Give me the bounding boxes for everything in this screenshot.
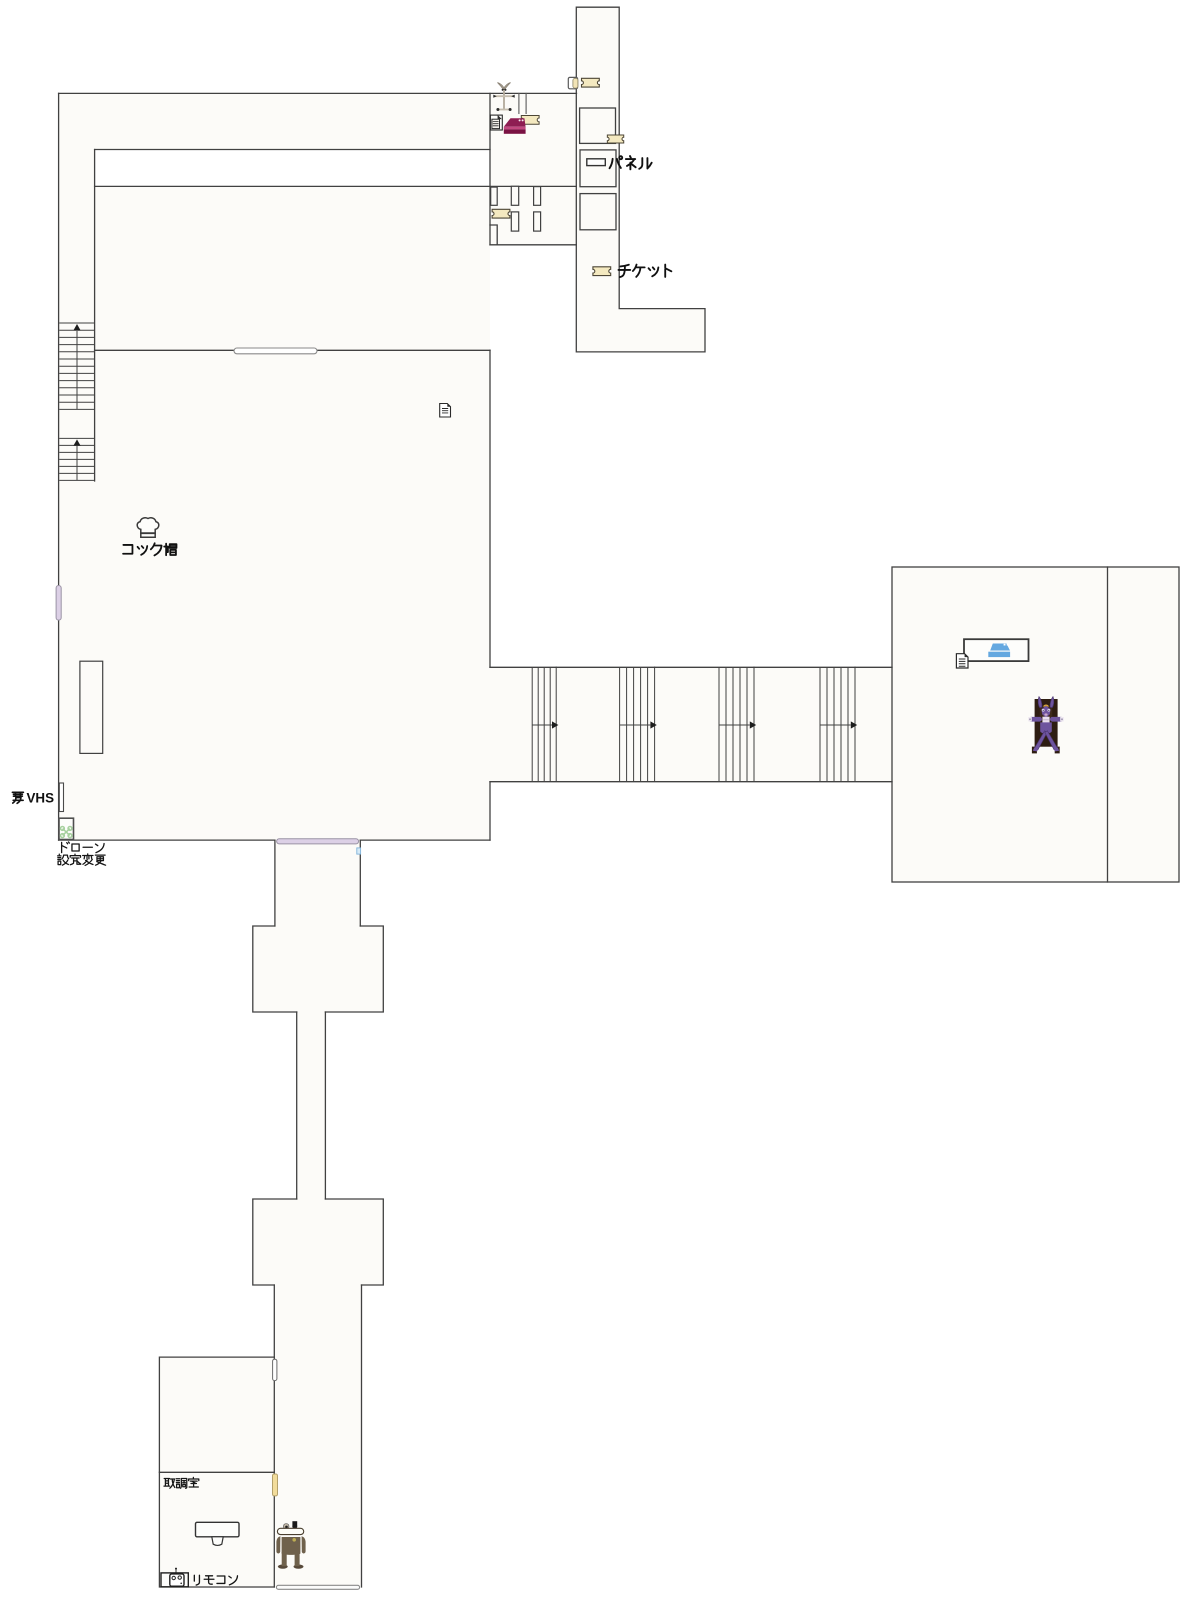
svg-text:VHS: VHS — [27, 791, 55, 806]
